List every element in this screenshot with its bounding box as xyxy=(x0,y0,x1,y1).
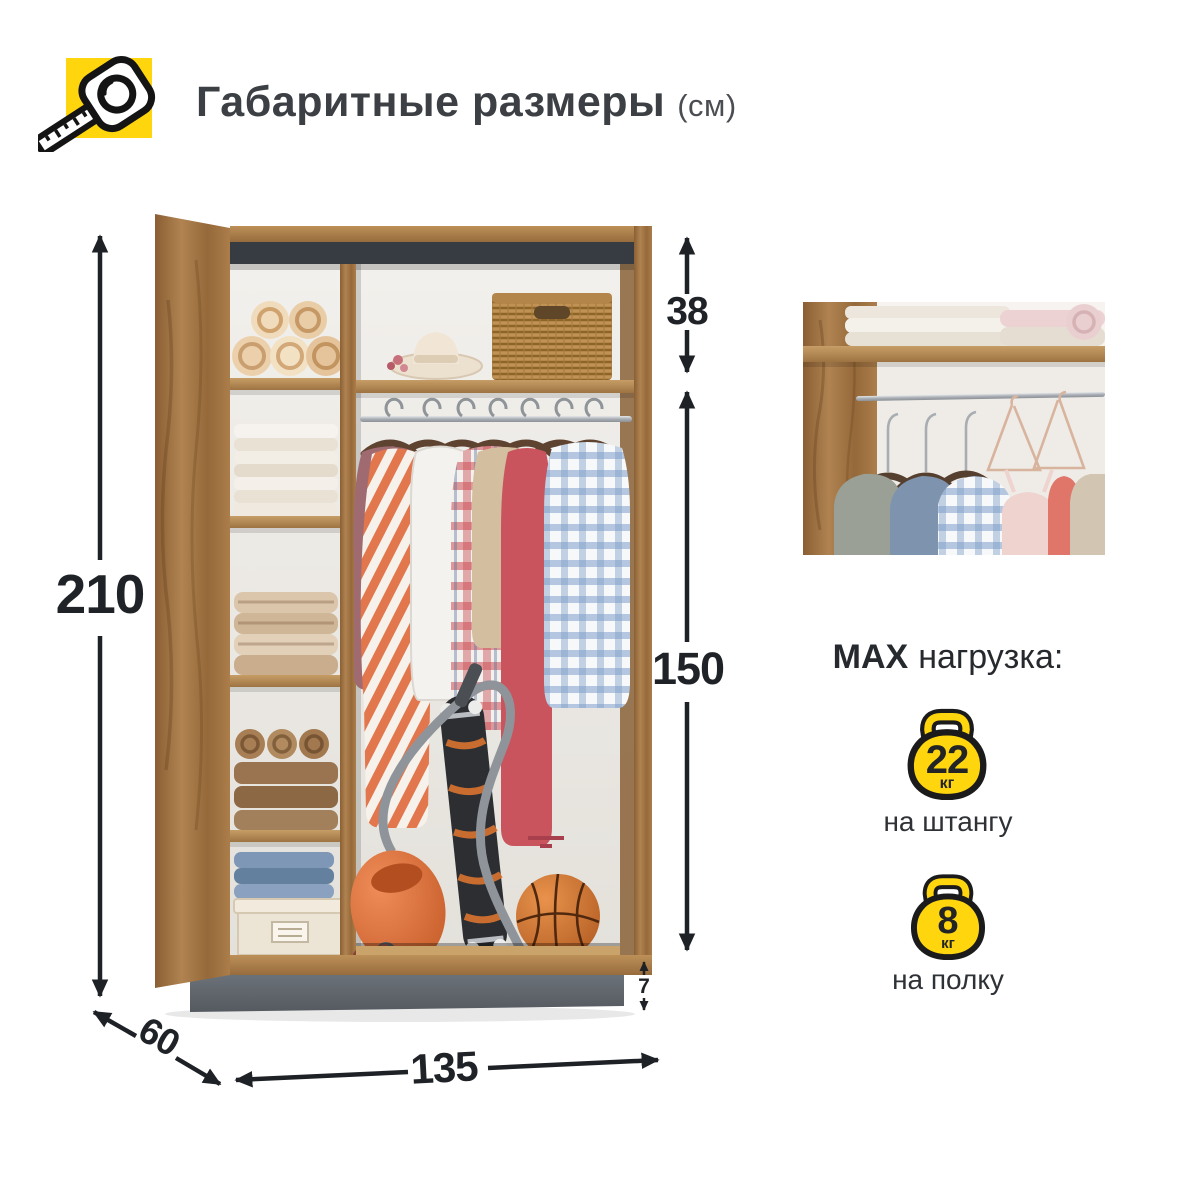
dim-width-label: 135 xyxy=(398,1045,490,1092)
max-load-heading-max: MAX xyxy=(833,638,909,676)
rod-load-label: на штангу xyxy=(820,806,1076,838)
kettlebell-icon-rod-load: 22 кг xyxy=(898,700,996,800)
shelf-compartment-beige-blankets xyxy=(234,592,338,675)
bottom-panel xyxy=(230,955,652,975)
hanging-rod xyxy=(360,416,632,422)
top-panel xyxy=(230,226,652,242)
wicker-basket xyxy=(492,293,612,380)
shelf-compartment-jeans-and-box xyxy=(234,852,346,955)
shelf-load-unit: кг xyxy=(902,936,994,951)
dim-height-label: 210 xyxy=(55,567,145,622)
max-load-heading: MAXнагрузка: xyxy=(790,638,1106,677)
shelf-compartment-white-linens xyxy=(234,424,338,516)
top-shelf xyxy=(356,380,634,393)
dim-plinth-label: 7 xyxy=(633,976,655,997)
side-panel-right xyxy=(634,226,652,975)
wardrobe-illustration xyxy=(0,0,1200,1200)
wardrobe xyxy=(155,214,652,1022)
interior-floor xyxy=(356,946,620,955)
top-rail-dark xyxy=(230,242,634,264)
dim-top-shelf-label: 38 xyxy=(652,292,722,331)
inset-photo-rod-closeup xyxy=(803,302,1105,556)
product-dimensions-infographic: Габаритные размеры (см) xyxy=(0,0,1200,1200)
kettlebell-icon-shelf-load: 8 кг xyxy=(902,866,994,960)
shelf-compartment-brown-towels xyxy=(234,729,338,830)
rod-load-unit: кг xyxy=(898,776,996,792)
shelf-load-label: на полку xyxy=(820,964,1076,996)
rod-load-value: 22 xyxy=(898,740,996,780)
max-load-heading-word: нагрузка: xyxy=(918,638,1063,676)
dim-hanging-label: 150 xyxy=(642,646,734,691)
center-divider xyxy=(340,264,356,955)
plinth xyxy=(190,975,624,1012)
